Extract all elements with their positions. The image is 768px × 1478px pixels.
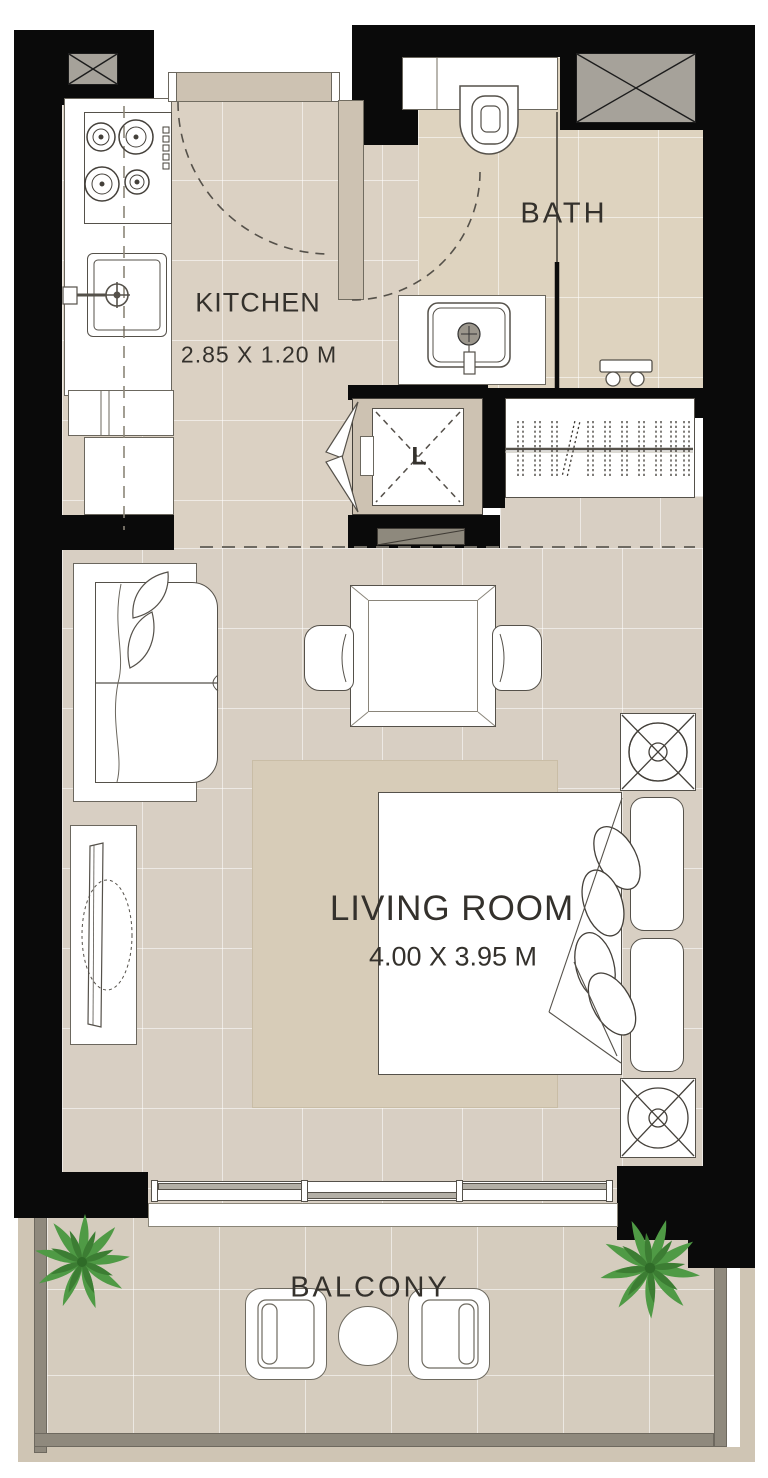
- chair-cushion-left: [342, 634, 346, 682]
- ramp-diagonal: [377, 530, 465, 545]
- bathroom-sink-detail: [428, 303, 510, 374]
- entry-door-swing-arc: [178, 102, 330, 254]
- leaf-icon: [128, 612, 154, 668]
- balcony-label: BALCONY: [290, 1272, 450, 1305]
- tv-details: [82, 843, 132, 1027]
- bath-door-swing-arc: [352, 172, 480, 300]
- detail-overlay: [0, 0, 768, 1478]
- kitchen-label: KITCHEN: [195, 288, 321, 319]
- sofa-details: [95, 572, 218, 782]
- plant-right: [600, 1218, 701, 1318]
- table-bevels: [351, 586, 495, 726]
- wardrobe-rail: [505, 449, 693, 452]
- floor-plan: KITCHEN 2.85 X 1.20 M BATH L LIVING ROOM…: [0, 0, 768, 1478]
- toilet: [437, 58, 518, 154]
- leaf-icon: [133, 572, 168, 618]
- kitchen-sink-detail: [63, 260, 160, 330]
- bifold-door: [326, 402, 358, 512]
- duct-x-top-left: [69, 54, 117, 84]
- nightstand-lamp-top: [622, 715, 694, 789]
- nightstand-lamp-bottom: [622, 1080, 694, 1156]
- duct-x-top-right: [577, 54, 695, 122]
- bed-cushions: [568, 819, 649, 1043]
- cooktop-knobs: [163, 127, 169, 169]
- cooktop-burners: [85, 120, 153, 201]
- shower-stool: [600, 360, 652, 386]
- balcony-chair-cushions: [258, 1300, 478, 1368]
- chair-cushion-right: [500, 634, 504, 682]
- living-room-label: LIVING ROOM: [330, 889, 574, 929]
- plant-left: [34, 1214, 130, 1309]
- shaft-label: L: [411, 443, 426, 472]
- living-room-dimensions: 4.00 X 3.95 M: [369, 942, 537, 973]
- bath-label: BATH: [520, 198, 607, 231]
- kitchen-dimensions: 2.85 X 1.20 M: [181, 342, 337, 369]
